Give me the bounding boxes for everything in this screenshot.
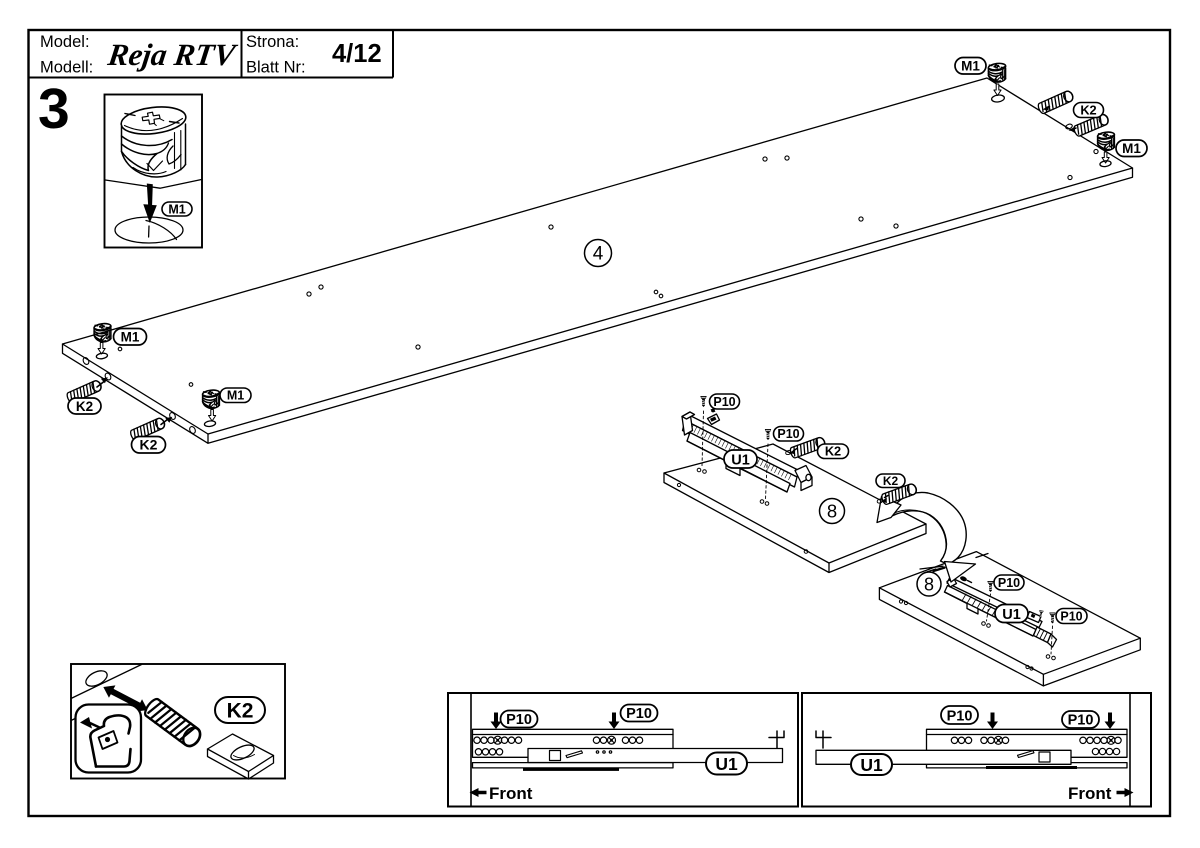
svg-text:P10: P10 [947,708,973,724]
svg-text:Reja RTV: Reja RTV [105,37,240,72]
svg-text:M1: M1 [121,330,140,345]
svg-text:U1: U1 [731,452,750,468]
svg-text:M1: M1 [1122,141,1141,156]
svg-text:P10: P10 [1060,610,1082,624]
svg-text:K2: K2 [227,700,254,723]
svg-text:Front: Front [489,784,533,803]
svg-text:Model:: Model: [40,33,90,51]
svg-text:P10: P10 [626,706,652,722]
svg-text:K2: K2 [883,474,899,488]
svg-text:P10: P10 [777,427,799,441]
svg-text:P10: P10 [506,712,532,728]
svg-text:8: 8 [924,575,934,595]
svg-text:K2: K2 [825,444,841,459]
svg-text:M1: M1 [961,59,980,74]
svg-text:4/12: 4/12 [332,40,382,68]
svg-text:K2: K2 [1080,103,1096,118]
svg-text:U1: U1 [1002,607,1021,623]
svg-text:P10: P10 [1068,713,1094,729]
svg-text:8: 8 [827,501,837,522]
svg-text:Front: Front [1068,784,1112,803]
svg-text:U1: U1 [860,755,883,775]
svg-text:Strona:: Strona: [246,33,299,51]
svg-text:P10: P10 [713,395,735,409]
svg-text:4: 4 [593,244,604,265]
svg-text:P10: P10 [998,576,1020,590]
svg-text:M1: M1 [227,389,244,403]
svg-text:Blatt Nr:: Blatt Nr: [246,59,306,77]
svg-text:K2: K2 [76,399,93,414]
svg-text:K2: K2 [140,437,158,453]
svg-text:M1: M1 [168,202,185,216]
svg-text:U1: U1 [715,754,738,774]
svg-text:Modell:: Modell: [40,59,93,77]
svg-text:3: 3 [38,77,70,141]
